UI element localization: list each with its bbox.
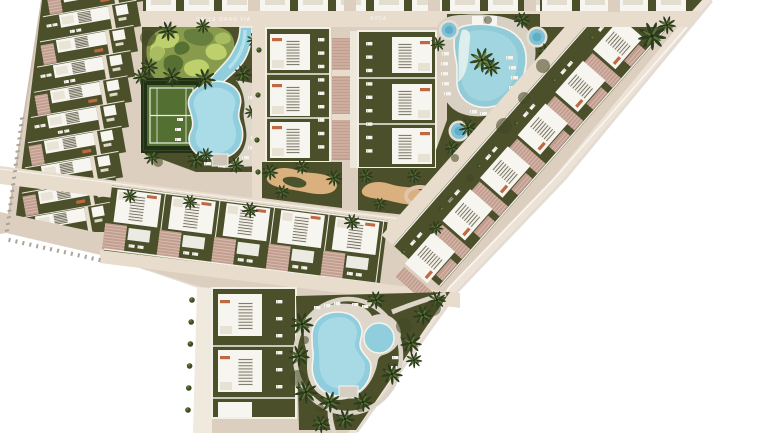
svg-text:AVDA: AVDA <box>370 16 387 22</box>
